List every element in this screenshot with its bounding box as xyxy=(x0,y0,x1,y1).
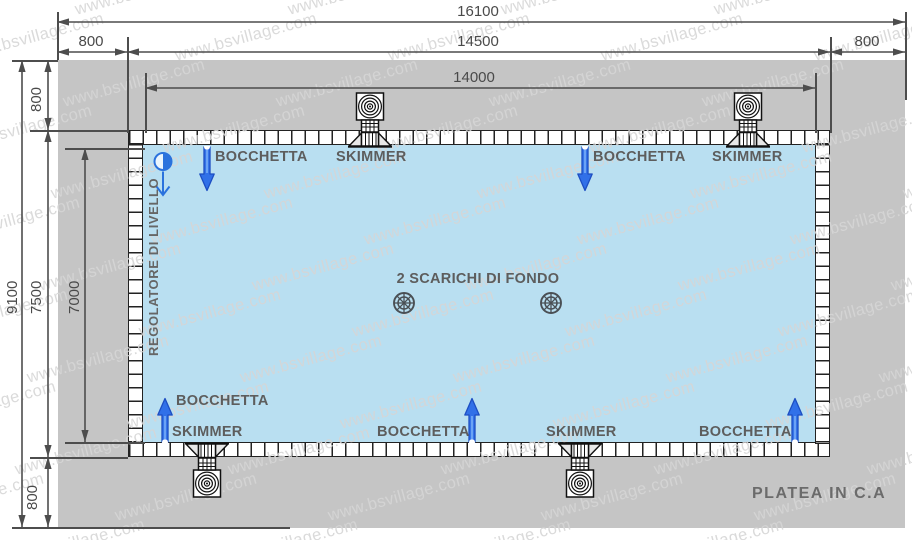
dimension-line xyxy=(127,47,830,57)
dimension-line xyxy=(43,457,53,527)
dimension-line xyxy=(43,60,53,130)
dim-extension-line xyxy=(57,12,59,60)
watermark-text: www.bsvillage.com xyxy=(0,469,46,525)
dimension-line xyxy=(57,17,905,27)
dim-extension-line xyxy=(905,12,907,100)
tile-border-top xyxy=(128,130,830,145)
dimension-value: 800 xyxy=(28,87,45,112)
dimension-line xyxy=(57,47,127,57)
tile-border-left xyxy=(128,143,143,444)
pool-technical-plan: www.bsvillage.comwww.bsvillage.comwww.bs… xyxy=(0,0,912,540)
dimension-value: 7500 xyxy=(28,281,45,314)
dimension-value: 16100 xyxy=(408,3,548,20)
watermark-text: www.bsvillage.com xyxy=(0,0,6,20)
watermark-text: www.bsvillage.com xyxy=(386,9,532,65)
watermark-text: www.bsvillage.com xyxy=(286,0,432,20)
dimension-line xyxy=(830,47,905,57)
watermark-text: www.bsvillage.com xyxy=(73,0,219,20)
watermark-text: www.bsvillage.com xyxy=(712,0,858,20)
watermark-text: www.bsvillage.com xyxy=(0,9,106,65)
dimension-line xyxy=(17,60,27,527)
dim-extension-line xyxy=(12,60,58,62)
watermark-text: www.bsvillage.com xyxy=(173,9,319,65)
watermark-text: www.bsvillage.com xyxy=(599,9,745,65)
tile-border-right xyxy=(815,143,830,444)
dimension-line xyxy=(43,130,53,457)
watermark-text: www.bsvillage.com xyxy=(812,9,912,65)
dimension-value: 14500 xyxy=(408,33,548,50)
dimension-value: 9100 xyxy=(4,281,21,314)
dimension-value: 800 xyxy=(21,33,161,50)
tile-border-bottom xyxy=(128,442,830,457)
dimension-value: 800 xyxy=(24,485,41,510)
watermark-text: www.bsvillage.com xyxy=(499,0,645,20)
dimension-value: 800 xyxy=(797,33,912,50)
watermark-text: www.bsvillage.com xyxy=(0,377,58,433)
pool-water xyxy=(143,145,815,442)
